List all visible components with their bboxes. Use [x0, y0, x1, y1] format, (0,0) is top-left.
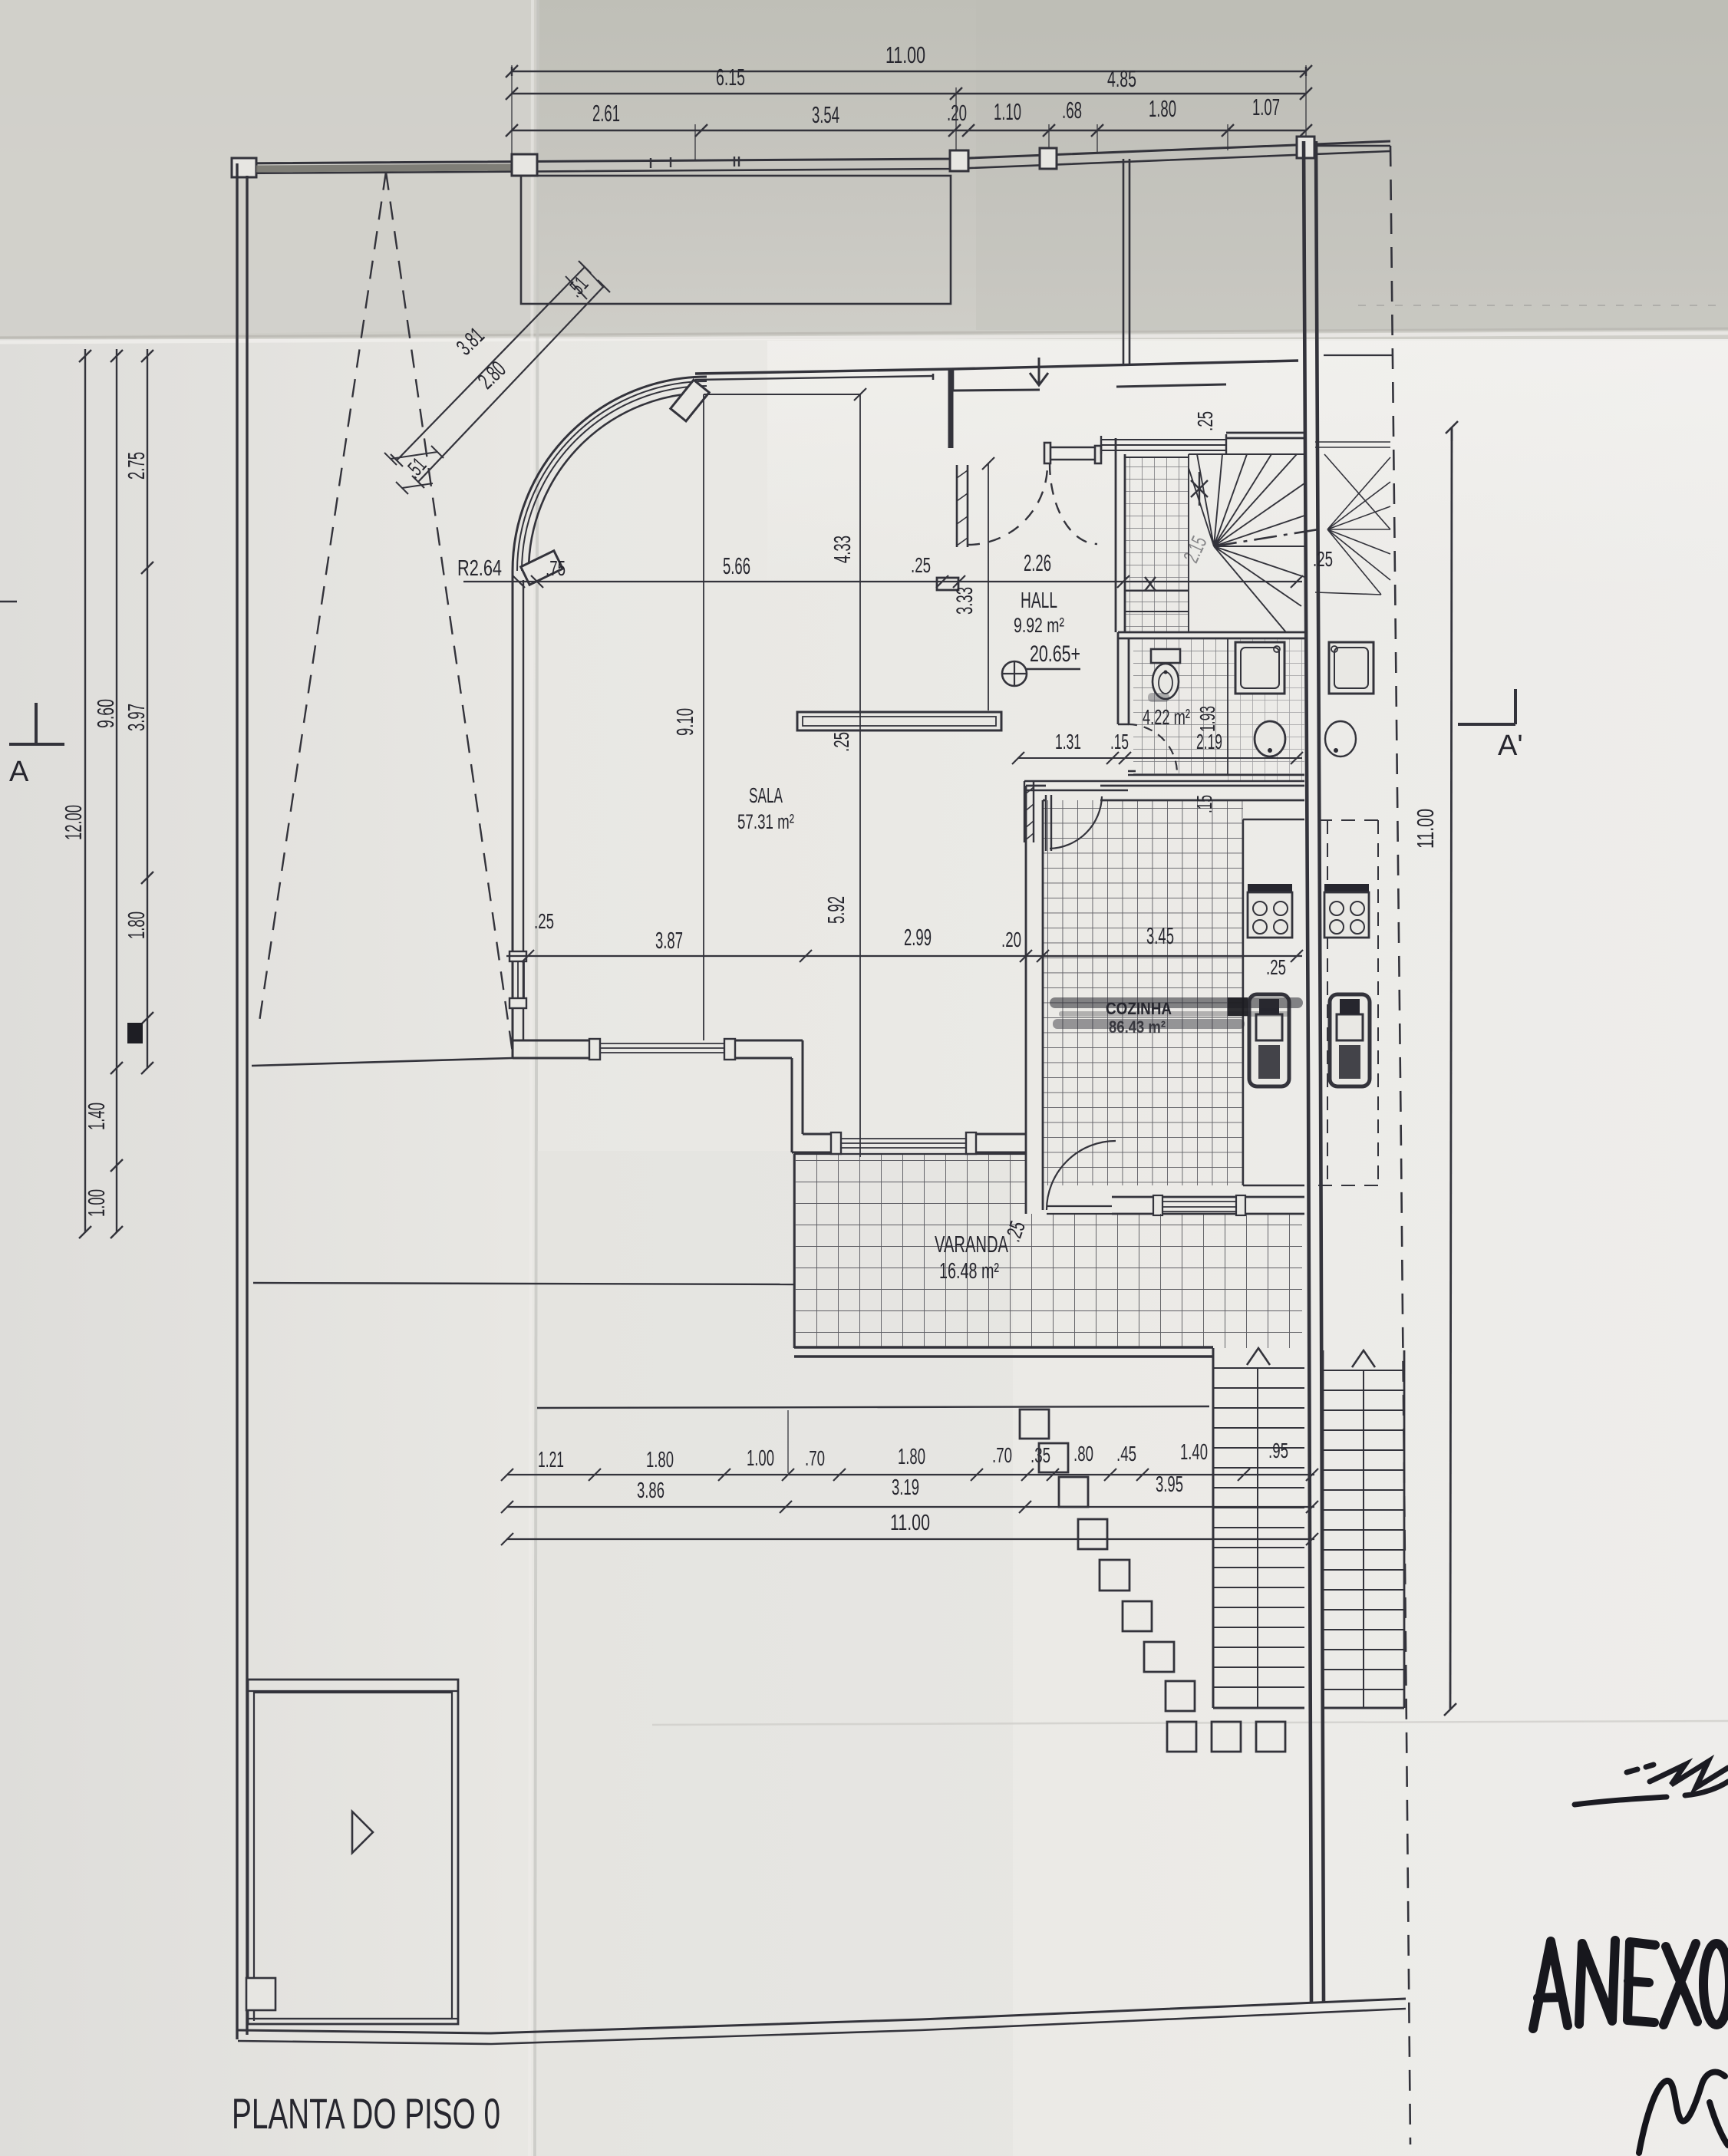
svg-text:A': A' [1498, 730, 1523, 762]
svg-text:5.66: 5.66 [723, 552, 750, 579]
svg-text:.80: .80 [1073, 1442, 1093, 1465]
svg-text:HALL: HALL [1021, 588, 1057, 613]
svg-text:4.22 m²: 4.22 m² [1143, 705, 1190, 729]
svg-text:3.33: 3.33 [952, 587, 978, 615]
svg-text:.45: .45 [1116, 1442, 1136, 1465]
svg-text:.70: .70 [805, 1446, 825, 1470]
svg-text:12.00: 12.00 [60, 805, 87, 840]
svg-text:1.80: 1.80 [1149, 95, 1176, 122]
svg-text:9.60: 9.60 [92, 699, 119, 728]
svg-text:3.95: 3.95 [1156, 1472, 1183, 1497]
svg-text:4.85: 4.85 [1107, 65, 1136, 92]
svg-text:1.93: 1.93 [1195, 706, 1219, 732]
svg-text:9.10: 9.10 [671, 708, 698, 736]
svg-text:.70: .70 [992, 1443, 1012, 1467]
svg-text:1.07: 1.07 [1252, 94, 1280, 120]
svg-text:86.43 m²: 86.43 m² [1109, 1017, 1166, 1037]
svg-text:PLANTA DO PISO 0: PLANTA DO PISO 0 [232, 2089, 500, 2138]
svg-text:2.75: 2.75 [123, 452, 150, 480]
svg-text:1.40: 1.40 [1180, 1440, 1208, 1465]
svg-text:11.00: 11.00 [1412, 809, 1439, 849]
svg-text:1.80: 1.80 [123, 912, 150, 939]
svg-text:.68: .68 [1062, 97, 1082, 124]
svg-text:1.80: 1.80 [898, 1445, 925, 1469]
svg-text:.25: .25 [1266, 955, 1286, 979]
svg-text:.15: .15 [1110, 730, 1129, 753]
svg-text:1.10: 1.10 [994, 98, 1021, 125]
svg-text:.15: .15 [1192, 795, 1216, 813]
svg-text:3.19: 3.19 [892, 1475, 919, 1500]
svg-text:.25: .25 [1193, 411, 1217, 431]
svg-text:A: A [9, 756, 29, 788]
svg-text:.20: .20 [947, 101, 967, 126]
svg-text:.25: .25 [534, 909, 554, 933]
svg-text:2.26: 2.26 [1024, 549, 1051, 576]
svg-text:1.40: 1.40 [83, 1103, 110, 1130]
svg-text:3.54: 3.54 [812, 101, 839, 128]
svg-text:VARANDA: VARANDA [935, 1231, 1008, 1258]
svg-text:1.00: 1.00 [83, 1189, 110, 1217]
svg-text:11.00: 11.00 [890, 1511, 930, 1535]
svg-text:.25: .25 [1313, 547, 1333, 571]
svg-text:1.80: 1.80 [646, 1448, 674, 1472]
svg-text:5.92: 5.92 [823, 896, 849, 924]
svg-text:.95: .95 [1268, 1439, 1288, 1462]
svg-text:.25: .25 [911, 553, 931, 577]
svg-text:.75: .75 [546, 556, 566, 580]
svg-text:1.21: 1.21 [538, 1448, 564, 1472]
svg-text:1.00: 1.00 [747, 1446, 774, 1471]
svg-text:3.86: 3.86 [637, 1479, 664, 1503]
svg-text:1.31: 1.31 [1055, 730, 1081, 753]
svg-text:R2.64: R2.64 [457, 556, 502, 581]
svg-text:20.65+: 20.65+ [1030, 641, 1080, 667]
svg-text:4.33: 4.33 [829, 536, 856, 563]
svg-text:SALA: SALA [749, 783, 783, 807]
svg-text:.25: .25 [829, 732, 853, 752]
svg-text:2.99: 2.99 [904, 924, 932, 951]
svg-text:2.19: 2.19 [1196, 730, 1222, 753]
svg-text:3.97: 3.97 [123, 704, 150, 731]
svg-text:.20: .20 [1001, 928, 1021, 951]
svg-text:57.31 m²: 57.31 m² [737, 810, 794, 833]
svg-text:16.48 m²: 16.48 m² [939, 1259, 999, 1284]
svg-text:11.00: 11.00 [885, 41, 925, 68]
svg-text:6.15: 6.15 [716, 64, 745, 91]
svg-text:2.61: 2.61 [592, 100, 620, 127]
svg-text:.35: .35 [1031, 1443, 1050, 1467]
svg-text:3.87: 3.87 [655, 927, 683, 954]
svg-text:9.92 m²: 9.92 m² [1014, 614, 1064, 637]
svg-text:COZINHA: COZINHA [1106, 999, 1172, 1018]
